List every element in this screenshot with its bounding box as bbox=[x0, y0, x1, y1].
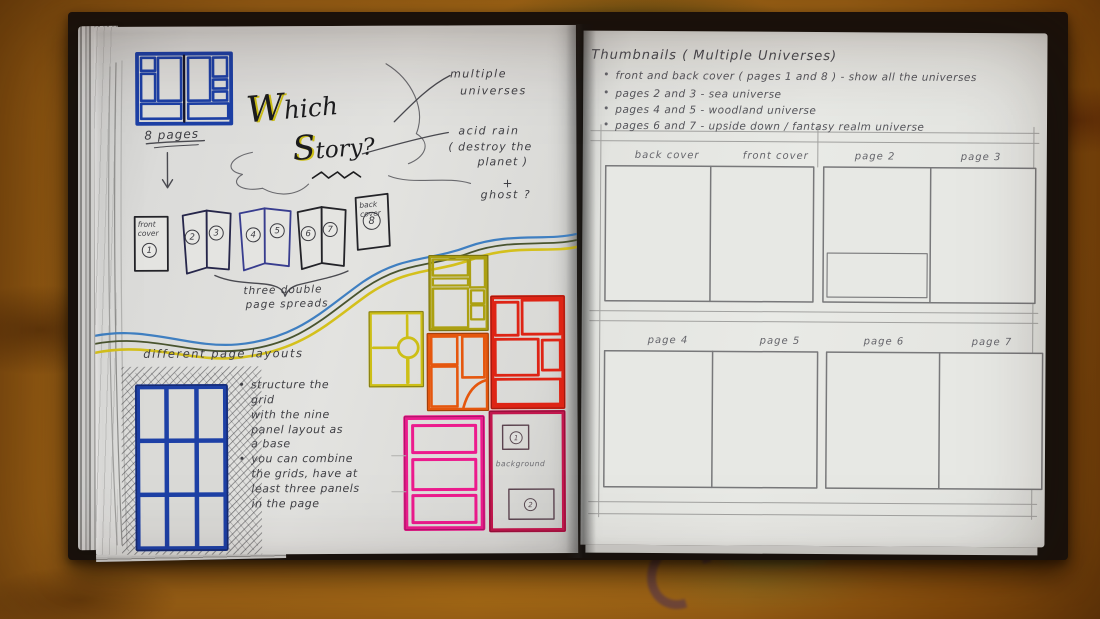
sketchbook: 8 pages Which Story? multiple universes … bbox=[68, 12, 1068, 560]
title-squiggle bbox=[312, 172, 360, 178]
universe-bullet-2: • pages 2 and 3 - sea universe bbox=[603, 87, 781, 102]
bullet-glyph: • bbox=[239, 452, 246, 465]
note-acid-rain: acid rain bbox=[458, 124, 519, 139]
layout-bullet-1-text: structure the grid with the nine panel l… bbox=[251, 378, 357, 453]
universe-bullet-1: • front and back cover ( pages 1 and 8 )… bbox=[603, 69, 977, 85]
bullet-glyph: • bbox=[603, 87, 609, 100]
pages-count-label: 8 pages bbox=[144, 126, 199, 144]
thumb-label-page-2: page 2 bbox=[855, 150, 896, 164]
thumb-label-back-cover: back cover bbox=[635, 149, 700, 163]
pink-layout-sketch bbox=[405, 416, 484, 529]
pages-arrow bbox=[146, 141, 204, 188]
spreads-caption-line2: page spreads bbox=[237, 296, 337, 312]
universe-bullet-4-text: pages 6 and 7 - upside down / fantasy re… bbox=[615, 119, 924, 135]
layout-bullet-1: • structure the grid with the nine panel… bbox=[238, 378, 356, 453]
thumb-label-page-4: page 4 bbox=[648, 334, 689, 348]
title-story-cap: S bbox=[291, 127, 317, 168]
page-number-2: 2 bbox=[185, 230, 200, 245]
thumb-label-page-3: page 3 bbox=[961, 151, 1002, 165]
note-planet: planet ) bbox=[477, 155, 528, 170]
page-number-6: 6 bbox=[301, 226, 316, 241]
background-label: background bbox=[496, 459, 546, 469]
spreads-row-sketch bbox=[135, 194, 390, 274]
crimson-panel-number-1: 1 bbox=[510, 431, 523, 444]
layout-bullet-2-text: you can combine the grids, have at least… bbox=[251, 452, 359, 512]
title-story: Story? bbox=[291, 123, 376, 168]
title-which-cap: W bbox=[244, 85, 285, 131]
thumbnails-heading: Thumbnails ( Multiple Universes) bbox=[591, 47, 837, 66]
page-number-1: 1 bbox=[142, 243, 157, 258]
thumbnail-spread-pages-4-5 bbox=[604, 351, 818, 488]
universe-bullet-3-text: pages 4 and 5 - woodland universe bbox=[615, 103, 816, 118]
page-number-8: 8 bbox=[363, 212, 381, 230]
red-layout-sketch bbox=[491, 296, 564, 408]
title-which: Which bbox=[244, 80, 339, 131]
crimson-panel-number-2: 2 bbox=[524, 498, 537, 511]
page-number-5: 5 bbox=[270, 223, 285, 238]
page-number-7: 7 bbox=[323, 222, 338, 237]
layouts-heading: different page layouts bbox=[143, 346, 303, 362]
bullet-glyph: • bbox=[603, 103, 609, 116]
right-page: Thumbnails ( Multiple Universes) • front… bbox=[580, 31, 1047, 548]
note-ghost: ghost ? bbox=[481, 188, 532, 203]
blue-spread-grid-sketch bbox=[137, 53, 231, 123]
bullet-glyph: • bbox=[603, 69, 609, 82]
orange-layout-sketch bbox=[427, 333, 488, 410]
universe-bullet-2-text: pages 2 and 3 - sea universe bbox=[615, 87, 781, 102]
note-destroy: ( destroy the bbox=[448, 140, 532, 155]
title-which-rest: hich bbox=[283, 91, 340, 125]
universe-bullet-3: • pages 4 and 5 - woodland universe bbox=[603, 103, 816, 118]
layout-bullet-2: • you can combine the grids, have at lea… bbox=[239, 452, 361, 512]
page-number-4: 4 bbox=[246, 227, 261, 242]
note-multiple: multiple bbox=[450, 67, 507, 82]
universe-bullet-1-text: front and back cover ( pages 1 and 8 ) -… bbox=[615, 69, 976, 85]
bullet-glyph: • bbox=[603, 119, 609, 132]
thumb-label-front-cover: front cover bbox=[743, 150, 809, 164]
thumbnail-spread-covers bbox=[605, 166, 814, 302]
page-number-3: 3 bbox=[209, 225, 224, 240]
yellow-circle-layout-sketch bbox=[369, 312, 423, 387]
olive-layout-sketch bbox=[429, 255, 488, 330]
thumbnail-boxes bbox=[604, 166, 1044, 490]
crimson-layout-sketch bbox=[490, 411, 566, 531]
thumbnail-spread-pages-6-7 bbox=[826, 352, 1043, 489]
thumbnail-spread-pages-2-3 bbox=[823, 167, 1036, 303]
left-page: 8 pages Which Story? multiple universes … bbox=[94, 25, 578, 555]
title-story-rest: tory? bbox=[315, 134, 376, 164]
thumb-label-page-5: page 5 bbox=[760, 335, 801, 349]
thumb-label-page-6: page 6 bbox=[864, 335, 905, 349]
note-universes: universes bbox=[460, 84, 527, 99]
photo-of-sketchbook: 8 pages Which Story? multiple universes … bbox=[0, 0, 1100, 619]
thumb-label-page-7: page 7 bbox=[972, 336, 1013, 350]
bullet-glyph: • bbox=[238, 378, 245, 391]
note-connectors bbox=[362, 76, 450, 154]
front-cover-label: front cover bbox=[138, 220, 166, 238]
universe-bullet-4: • pages 6 and 7 - upside down / fantasy … bbox=[603, 119, 924, 135]
